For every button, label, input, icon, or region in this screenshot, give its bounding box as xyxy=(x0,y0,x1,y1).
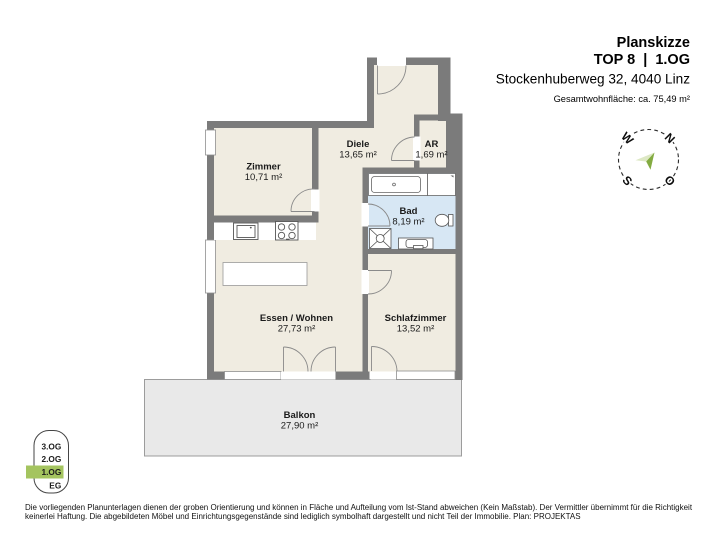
svg-text:3.OG: 3.OG xyxy=(41,441,61,451)
svg-text:AR: AR xyxy=(425,139,439,150)
svg-text:Die vorliegenden Planunterlage: Die vorliegenden Planunterlagen dienen d… xyxy=(25,503,693,512)
svg-text:Diele: Diele xyxy=(347,139,370,150)
svg-text:2.OG: 2.OG xyxy=(41,454,61,464)
svg-text:27,90 m²: 27,90 m² xyxy=(281,421,319,432)
svg-text:Schlafzimmer: Schlafzimmer xyxy=(385,313,447,324)
svg-text:Zimmer: Zimmer xyxy=(246,162,281,173)
svg-text:Planskizze: Planskizze xyxy=(617,35,690,51)
svg-text:8,19 m²: 8,19 m² xyxy=(392,217,424,228)
svg-text:EG: EG xyxy=(49,480,61,490)
svg-text:TOP 8 | 1.OG: TOP 8 | 1.OG xyxy=(594,52,690,68)
svg-text:Gesamtwohnfläche: ca. 75,49 m²: Gesamtwohnfläche: ca. 75,49 m² xyxy=(554,94,690,104)
svg-text:13,65 m²: 13,65 m² xyxy=(339,150,377,161)
svg-text:Stockenhuberweg 32, 4040 Linz: Stockenhuberweg 32, 4040 Linz xyxy=(496,72,690,87)
svg-text:1,69 m²: 1,69 m² xyxy=(415,150,447,161)
svg-text:Balkon: Balkon xyxy=(284,410,316,421)
svg-text:1.OG: 1.OG xyxy=(41,467,61,477)
svg-text:keinerlei Haftung. Die abgebil: keinerlei Haftung. Die abgebildeten Möbe… xyxy=(25,512,581,521)
svg-text:27,73 m²: 27,73 m² xyxy=(278,324,316,335)
svg-text:10,71 m²: 10,71 m² xyxy=(245,172,283,183)
svg-text:Bad: Bad xyxy=(400,206,418,217)
svg-text:13,52 m²: 13,52 m² xyxy=(397,324,435,335)
svg-text:Essen / Wohnen: Essen / Wohnen xyxy=(260,313,333,324)
